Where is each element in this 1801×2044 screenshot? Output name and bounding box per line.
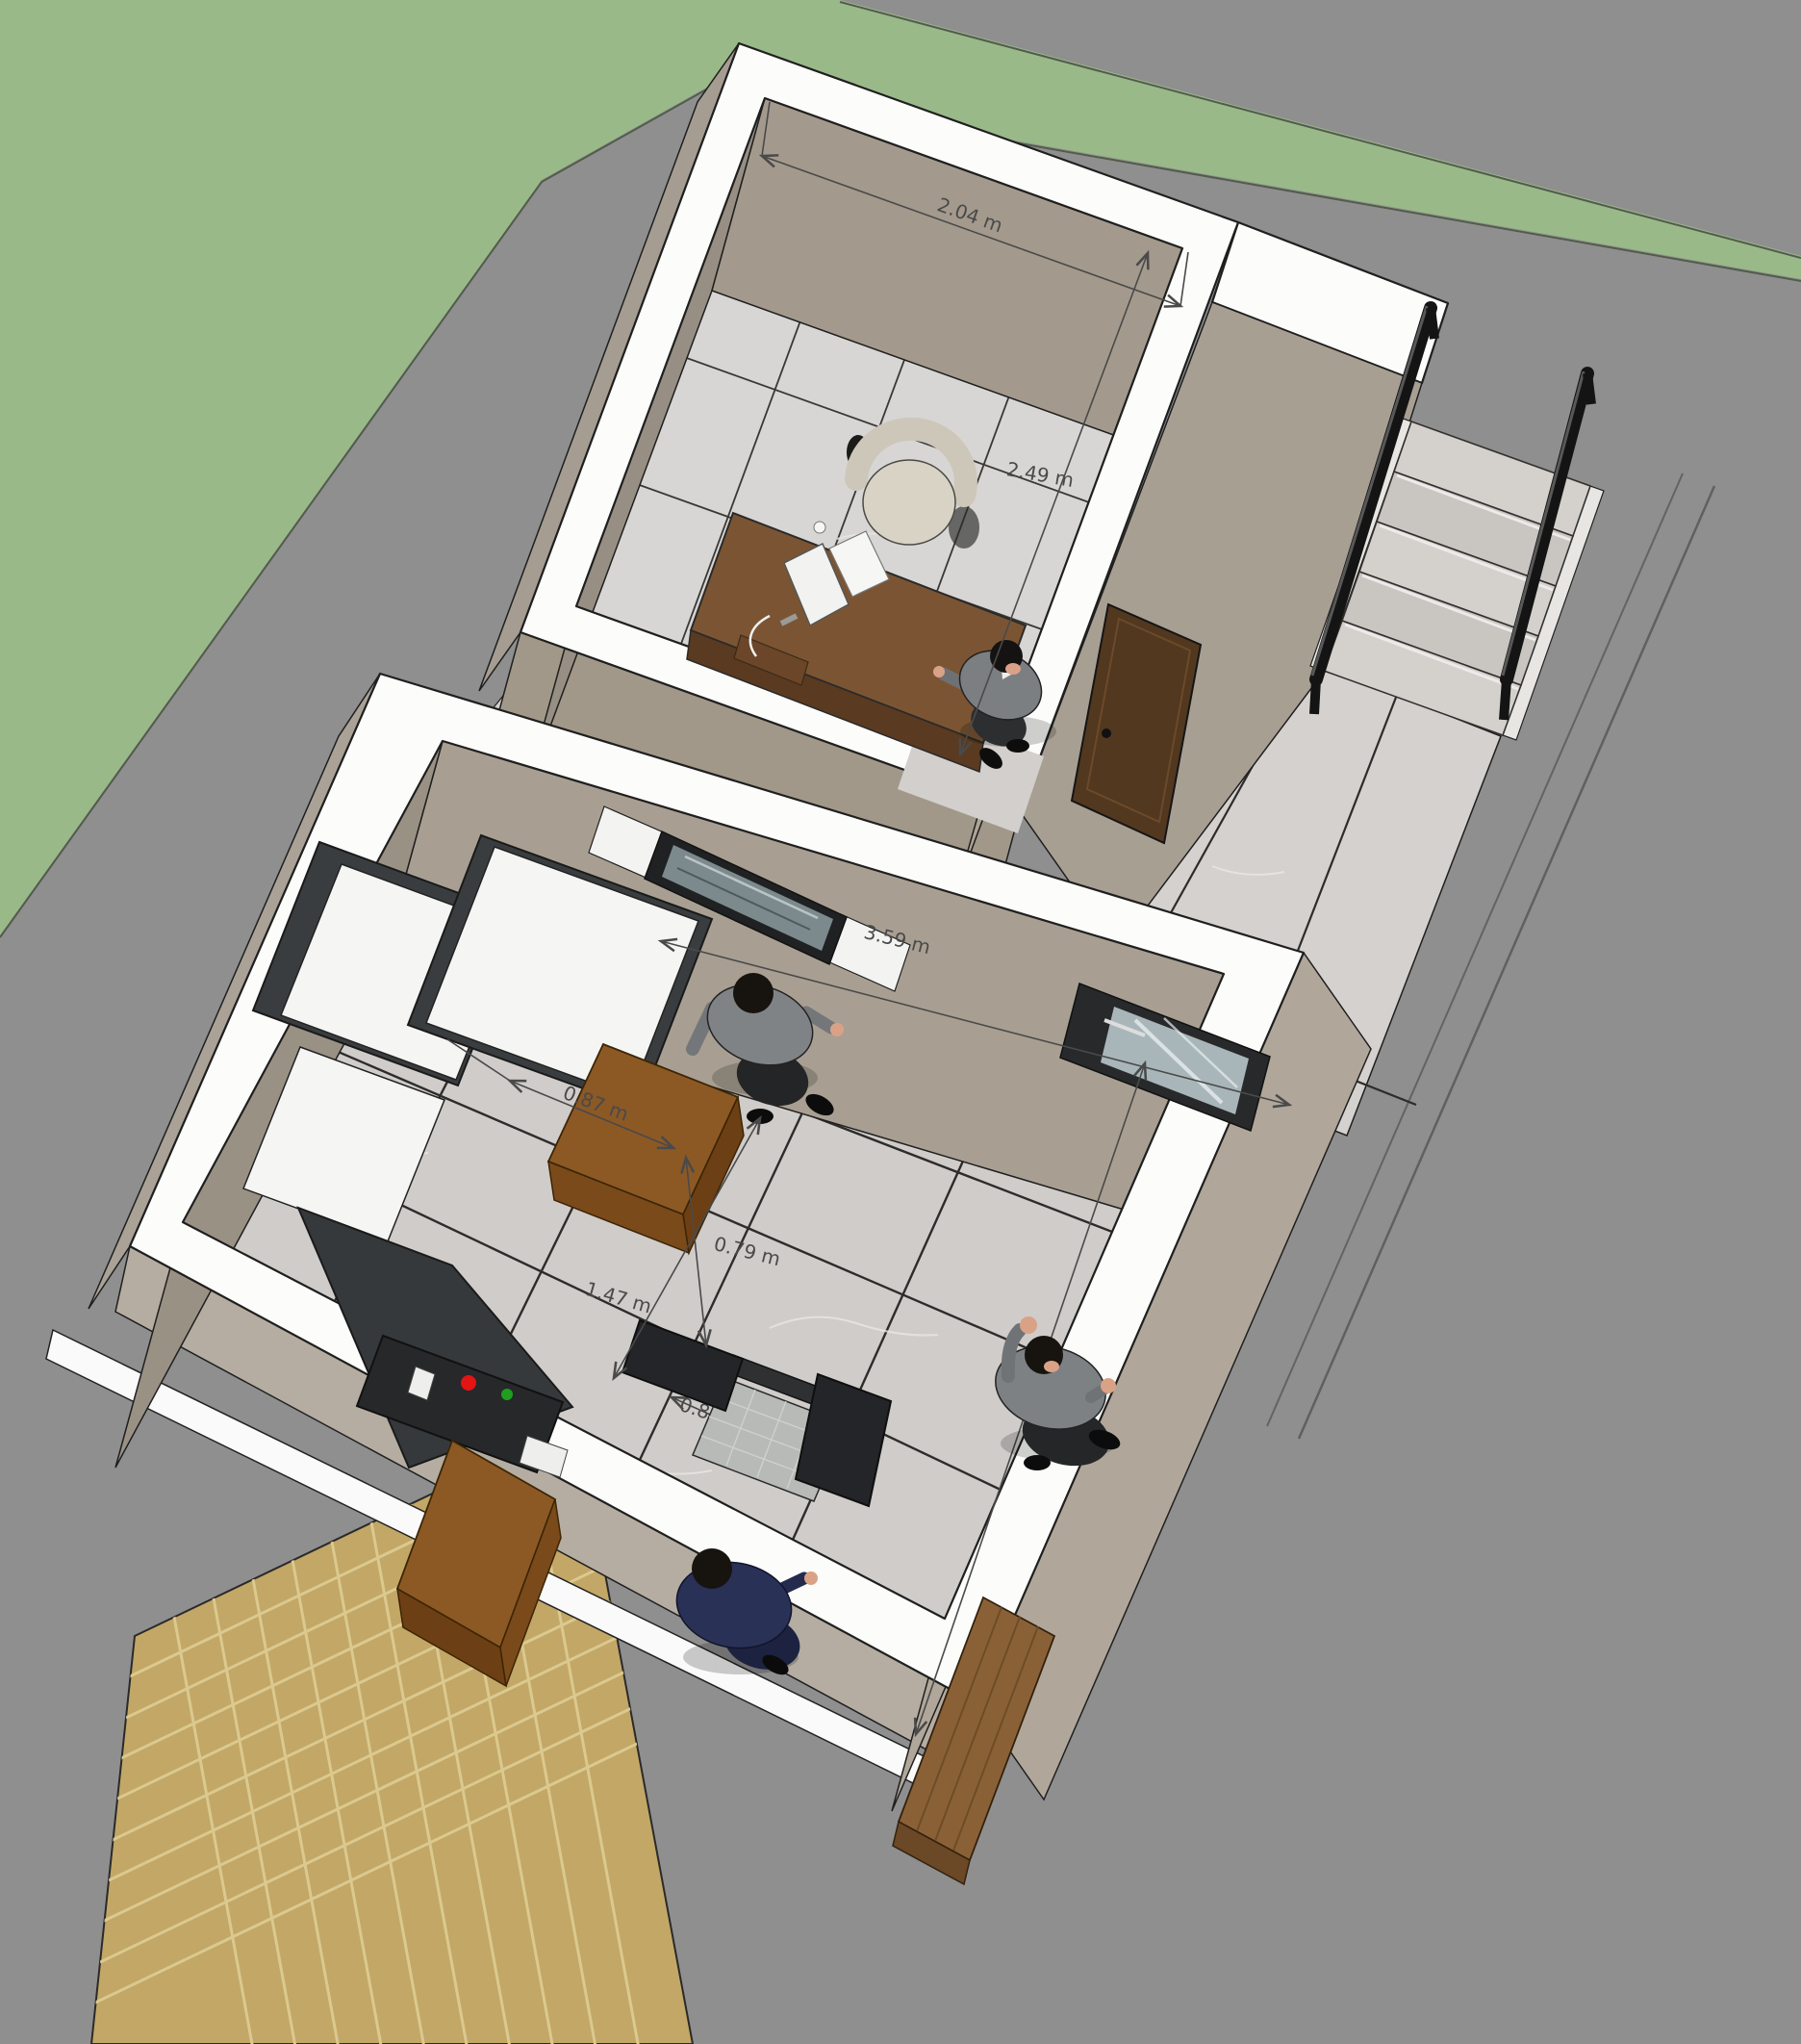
led-red [461,1375,476,1391]
3d-model-viewport[interactable]: 0.8 m 3.9 m [0,0,1801,2044]
led-green [501,1389,513,1400]
person-head [733,973,774,1013]
door-handle [1102,728,1111,738]
mouse [814,522,825,533]
person-head [692,1548,732,1589]
